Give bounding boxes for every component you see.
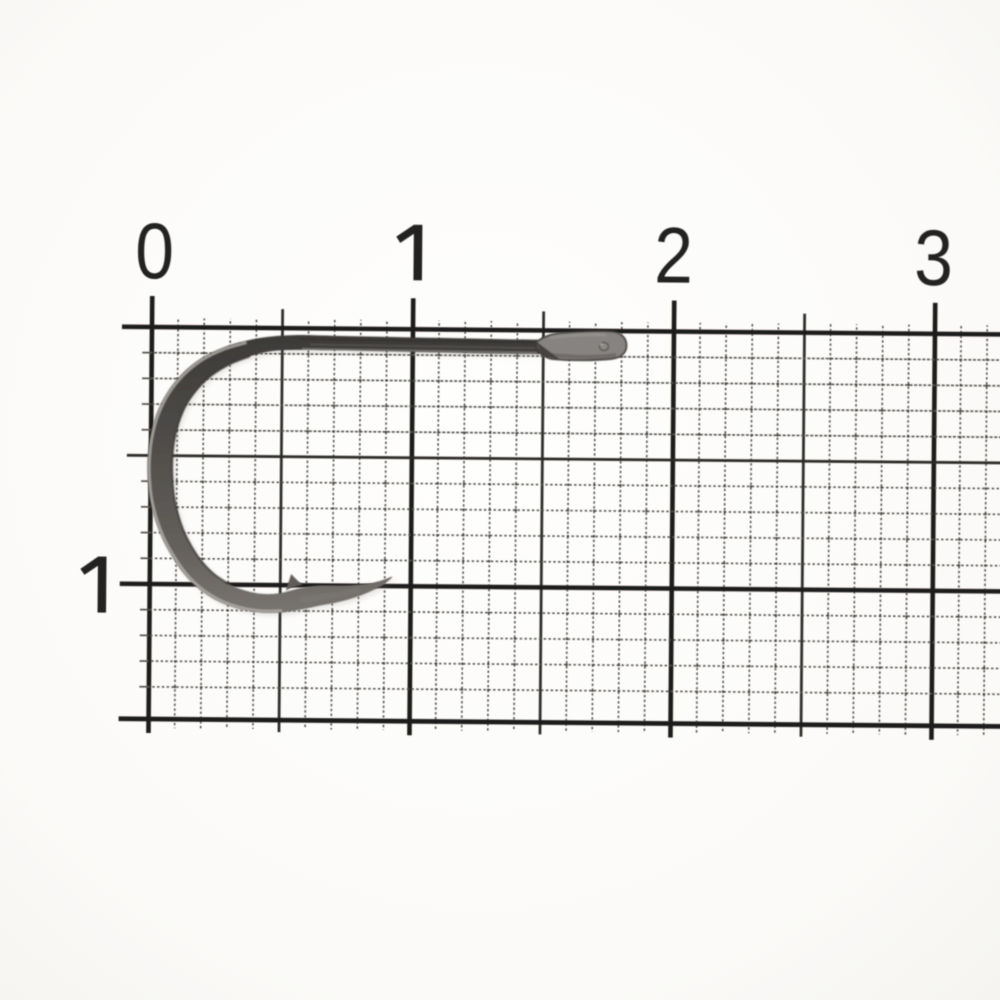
svg-text:3: 3 xyxy=(914,214,953,302)
svg-text:0: 0 xyxy=(135,207,174,295)
svg-text:2: 2 xyxy=(654,211,693,299)
